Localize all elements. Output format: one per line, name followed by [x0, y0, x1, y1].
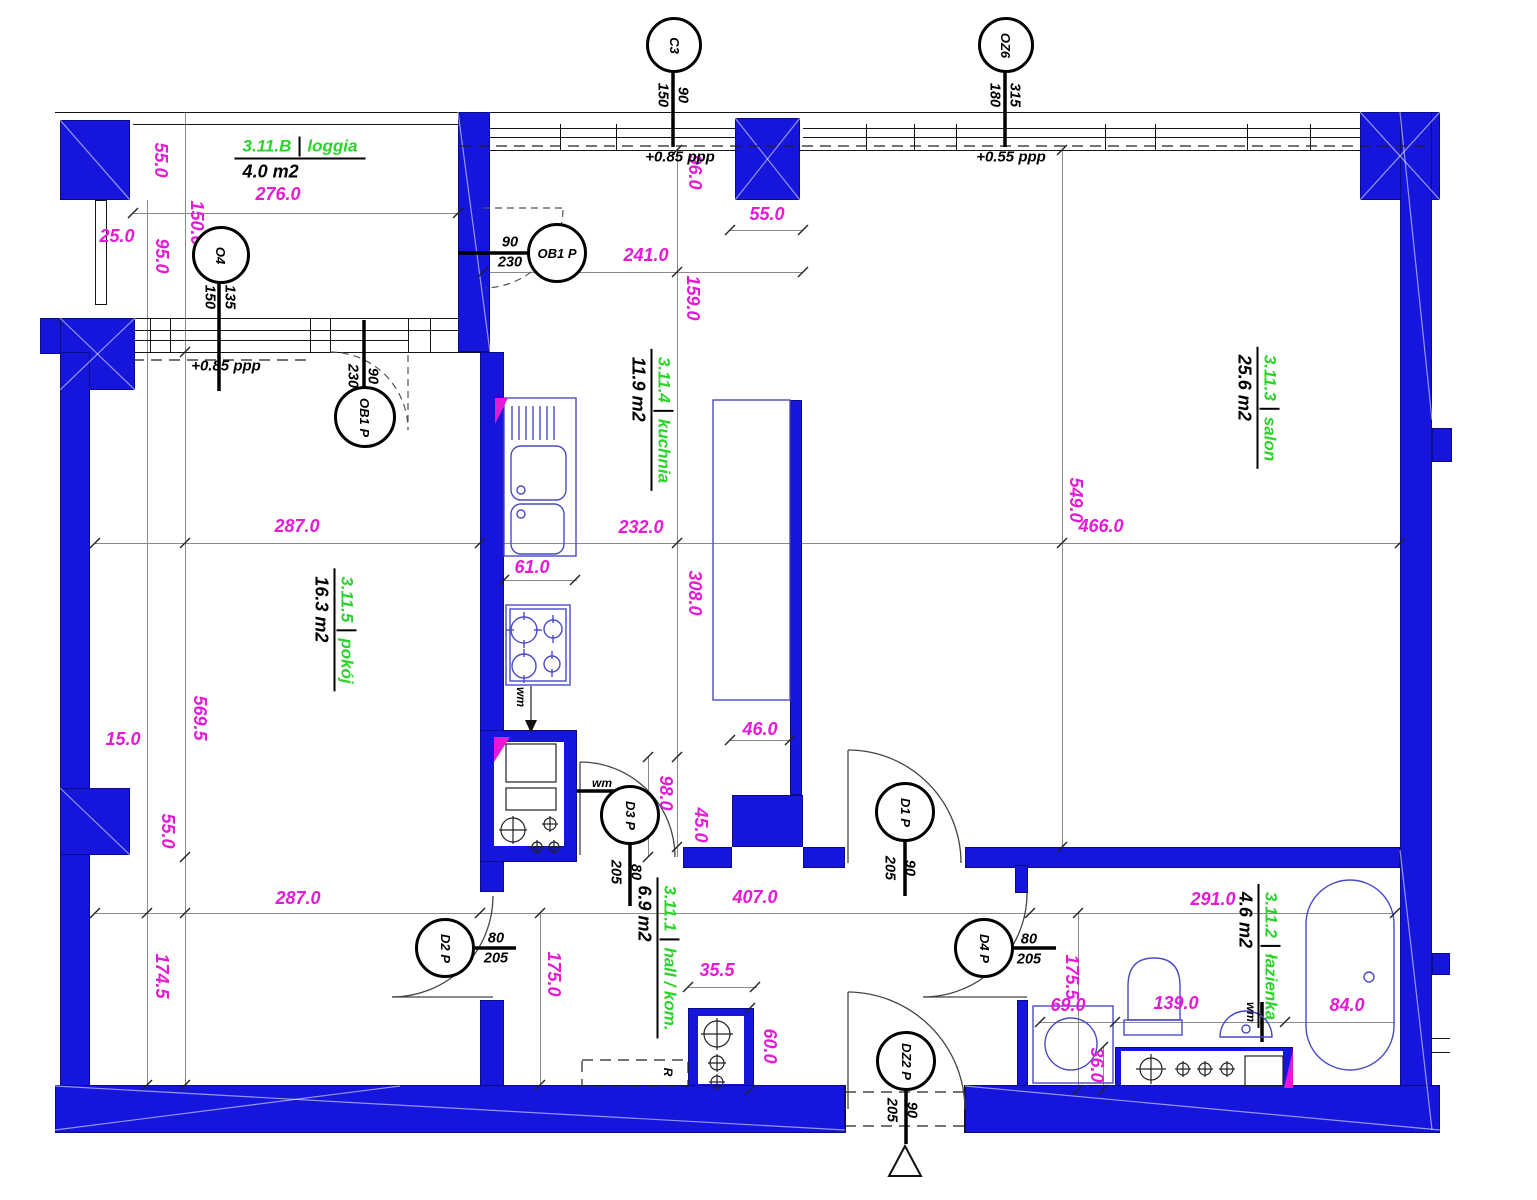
room-area: 4.6 m2 — [1234, 884, 1258, 1028]
dim-label: 55.0 — [749, 205, 784, 223]
dim-line — [500, 580, 577, 581]
kitchen-counter — [504, 398, 576, 556]
dim-label: 60.0 — [761, 1028, 779, 1063]
dim-label: 287.0 — [275, 889, 320, 907]
dim-label: 407.0 — [732, 888, 777, 906]
facade-detail — [1432, 1052, 1450, 1053]
burner — [511, 617, 537, 643]
loggia-window-line — [133, 340, 408, 341]
dim-label: 291.0 — [1190, 890, 1235, 908]
bathtub — [1306, 880, 1394, 1070]
size-pair-ob1b: 90230 — [342, 364, 383, 388]
dim-label: 36.0 — [1088, 1047, 1106, 1082]
loggia-side-railing — [95, 200, 107, 305]
dim-label: 55.0 — [152, 142, 170, 177]
wall — [458, 112, 490, 352]
entry-jamb — [845, 1085, 846, 1133]
size-pair-dz2: 90205 — [881, 1098, 922, 1122]
door-tag-d2: D2 P — [415, 918, 475, 978]
room-label-hall: 3.11.1hall / kom. 6.9 m2 — [633, 877, 680, 1038]
window-mullion — [408, 318, 409, 352]
room-area: 25.6 m2 — [1233, 347, 1257, 469]
entrance-marker — [889, 1146, 921, 1176]
kitchen-sink — [511, 446, 566, 500]
window-mullion — [170, 318, 171, 352]
room-area: 11.9 m2 — [627, 349, 651, 491]
bath-counter — [1121, 1051, 1283, 1088]
room-id: 3.11.2 — [1260, 892, 1280, 947]
door-tag-ob1b: OB1 P — [334, 386, 396, 448]
window-mullion — [560, 124, 561, 150]
insulation-hatch — [494, 398, 1293, 1088]
room-label-salon: 3.11.3salon 25.6 m2 — [1233, 347, 1280, 469]
window-mullion — [310, 318, 311, 352]
dim-line — [540, 913, 541, 1085]
level-label: +0.55 ppp — [976, 150, 1046, 165]
dim-label: 569.5 — [191, 695, 209, 740]
room-label-lazienka: 3.11.2łazienka 4.6 m2 — [1234, 884, 1281, 1028]
dim-label: 308.0 — [686, 570, 704, 615]
window-mullion — [1105, 124, 1106, 150]
wall — [1017, 1000, 1028, 1092]
dim-line — [483, 272, 803, 273]
window-tag-c3: C3 — [646, 17, 702, 73]
window-line — [490, 137, 735, 138]
wall-pillar — [60, 788, 130, 855]
dim-line — [1040, 1022, 1395, 1023]
room-name: hall / kom. — [659, 940, 679, 1030]
window-mullion — [150, 318, 151, 352]
loggia-window-line — [133, 330, 458, 331]
dim-label: 159.0 — [684, 275, 702, 320]
dim-label: 98.0 — [657, 775, 675, 810]
wall — [1015, 865, 1028, 893]
kitchen-sink — [511, 504, 564, 554]
window-tag-oz6: OZ6 — [978, 17, 1034, 73]
dim-label: 241.0 — [623, 246, 668, 264]
room-area: 16.3 m2 — [310, 568, 334, 691]
dim-ticks — [90, 145, 1405, 1095]
size-pair-ob1a: 90230 — [498, 233, 522, 274]
dim-label: 45.0 — [692, 807, 710, 842]
door-tag-d1: D1 P — [875, 782, 935, 842]
size-pair-oz6: 315180 — [984, 83, 1025, 107]
window-tag-o4: O4 — [192, 226, 250, 284]
room-name: salon — [1259, 410, 1279, 461]
wall-left — [60, 352, 90, 1100]
window-line — [803, 128, 1360, 129]
dim-label: 174.5 — [153, 953, 171, 998]
wall-bottom — [965, 1085, 1440, 1133]
dim-label: 84.0 — [1329, 996, 1364, 1014]
window-mullion — [866, 124, 867, 150]
window-line — [803, 137, 1360, 138]
wall — [480, 857, 504, 892]
window-mullion — [1310, 124, 1311, 150]
wall-nub — [1432, 428, 1452, 462]
room-id: 3.11.5 — [336, 576, 356, 631]
window-line — [490, 128, 735, 129]
dim-label: 25.0 — [99, 227, 134, 245]
dim-label: 95.0 — [153, 238, 171, 273]
size-pair-d4: 80205 — [1017, 930, 1041, 971]
shaft-hall-inner — [698, 1016, 744, 1084]
level-label: +0.85 ppp — [191, 359, 261, 374]
room-label-kuchnia: 3.11.4kuchnia 11.9 m2 — [627, 349, 674, 491]
wall — [40, 318, 62, 354]
dim-label: 276.0 — [255, 185, 300, 203]
dim-label: 15.0 — [105, 730, 140, 748]
size-pair-o4: 135150 — [199, 285, 240, 309]
dim-line — [730, 230, 803, 231]
wall-inner-edge — [460, 150, 1437, 151]
dim-label: 232.0 — [618, 518, 663, 536]
size-pair-d2: 80205 — [484, 929, 508, 970]
wm-label: wm — [592, 777, 612, 789]
wall — [683, 847, 732, 868]
dim-label: 61.0 — [514, 558, 549, 576]
dim-line — [95, 913, 1395, 914]
dim-line — [1062, 150, 1063, 847]
wall-nub — [1432, 953, 1450, 975]
wall — [790, 400, 802, 795]
top-facade-line — [55, 112, 1437, 113]
dim-line — [688, 987, 757, 988]
dim-label: 46.0 — [742, 720, 777, 738]
loggia-railing — [133, 124, 458, 125]
dim-line — [133, 213, 458, 214]
room-id: 3.11.3 — [1259, 355, 1279, 410]
wall-pier — [732, 795, 803, 847]
room-name: kuchnia — [653, 412, 673, 483]
room-label-pokoj: 3.11.5pokój 16.3 m2 — [310, 568, 357, 691]
wall — [803, 847, 845, 868]
wall — [965, 847, 1400, 868]
dim-line — [95, 543, 1400, 544]
salon-counter — [713, 400, 790, 700]
dim-line — [147, 200, 148, 1085]
dim-label: 175.0 — [545, 951, 563, 996]
room-label-loggia: 3.11.Bloggia 4.0 m2 — [235, 137, 366, 184]
wall-right — [1400, 112, 1432, 1133]
dim-label: 55.0 — [159, 813, 177, 848]
size-pair-d1: 90205 — [879, 856, 920, 880]
dim-label: 175.5 — [1063, 954, 1081, 999]
burner — [544, 656, 560, 672]
wall-hatch-diagonals — [55, 112, 1440, 1130]
facade-detail — [1432, 1038, 1450, 1039]
dim-line — [730, 740, 790, 741]
window-mullion — [616, 124, 617, 150]
wall-bottom — [55, 1085, 845, 1133]
door-tag-d4: D4 P — [954, 918, 1014, 978]
window-mullion — [330, 318, 331, 352]
burner — [544, 620, 562, 638]
room-area: 6.9 m2 — [633, 877, 657, 1038]
window-mullion — [914, 124, 915, 150]
window-mullion — [1155, 124, 1156, 150]
door-tag-ob1a: OB1 P — [527, 223, 587, 283]
room-id: 3.11.4 — [653, 357, 673, 412]
wall — [480, 1000, 504, 1087]
level-label: +0.85 ppp — [645, 150, 715, 165]
wm-label: wm — [515, 687, 527, 707]
room-area: 4.0 m2 — [235, 160, 366, 184]
dim-label: 139.0 — [1153, 994, 1198, 1012]
dim-label: 69.0 — [1050, 996, 1085, 1014]
burner — [512, 654, 536, 678]
dim-line — [185, 112, 186, 1085]
size-pair-c3: 90150 — [652, 83, 693, 107]
floor-plan: 55.0 150.0 95.0 25.0 276.0 96.0 55.0 241… — [0, 0, 1537, 1200]
door-tag-d3: D3 P — [600, 785, 660, 845]
stove — [506, 605, 570, 685]
room-name: łazienka — [1260, 947, 1280, 1020]
dim-label: 35.5 — [699, 961, 734, 979]
room-id: 3.11.1 — [659, 885, 679, 940]
room-name: pokój — [336, 631, 356, 683]
window-mullion — [1247, 124, 1248, 150]
room-name: loggia — [300, 137, 357, 157]
window-mullion — [956, 124, 957, 150]
tag-leader-lines — [219, 70, 1262, 1144]
dim-label: 287.0 — [274, 517, 319, 535]
door-tag-dz2: DZ2 P — [876, 1031, 936, 1091]
radiator-label: R — [662, 1068, 674, 1077]
wall-pillar — [60, 120, 130, 200]
dim-label: 466.0 — [1078, 517, 1123, 535]
dim-line — [677, 150, 678, 857]
wall-pier — [735, 118, 800, 200]
room-id: 3.11.B — [243, 137, 301, 157]
shaft-kitchen-inner — [494, 742, 564, 846]
window-mullion — [430, 318, 431, 352]
